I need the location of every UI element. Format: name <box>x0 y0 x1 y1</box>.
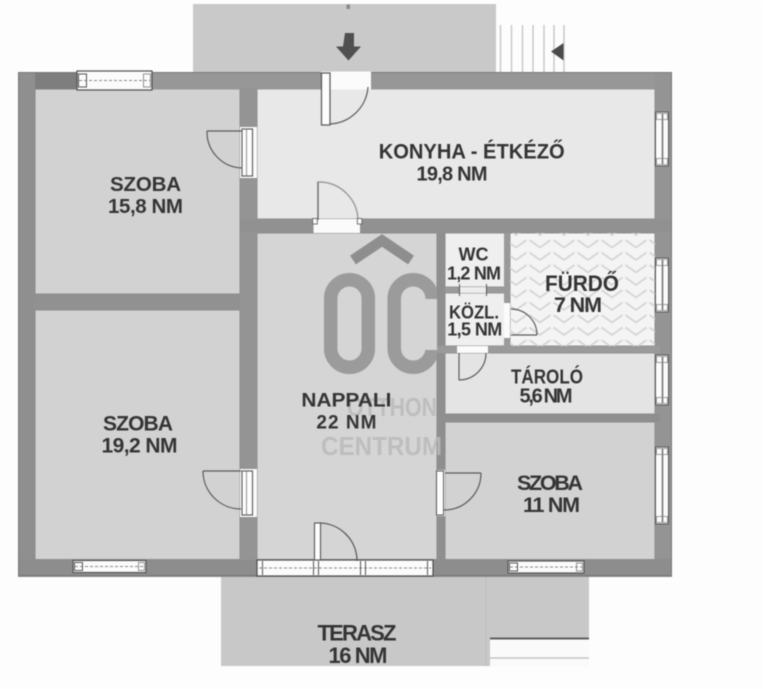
svg-text:NAPPALI: NAPPALI <box>301 391 391 412</box>
svg-text:1,5 NM: 1,5 NM <box>447 320 502 340</box>
svg-text:SZOBA: SZOBA <box>517 471 583 495</box>
svg-text:7 NM: 7 NM <box>554 293 602 317</box>
svg-text:19,8 NM: 19,8 NM <box>417 164 488 186</box>
svg-text:SZOBA: SZOBA <box>103 413 173 436</box>
svg-text:16 NM: 16 NM <box>329 643 388 668</box>
svg-text:1,2 NM: 1,2 NM <box>447 264 501 284</box>
svg-text:SZOBA: SZOBA <box>110 173 181 196</box>
svg-text:WC: WC <box>459 245 489 265</box>
svg-text:KONYHA - ÉTKÉZŐ: KONYHA - ÉTKÉZŐ <box>379 139 565 164</box>
svg-text:19,2 NM: 19,2 NM <box>102 435 178 458</box>
svg-text:11 NM: 11 NM <box>523 493 580 517</box>
svg-text:CENTRUM: CENTRUM <box>321 431 442 461</box>
svg-text:15,8 NM: 15,8 NM <box>108 195 183 218</box>
svg-text:TERASZ: TERASZ <box>318 621 397 646</box>
svg-text:5,6 NM: 5,6 NM <box>520 386 573 408</box>
svg-text:22 NM: 22 NM <box>316 413 376 434</box>
